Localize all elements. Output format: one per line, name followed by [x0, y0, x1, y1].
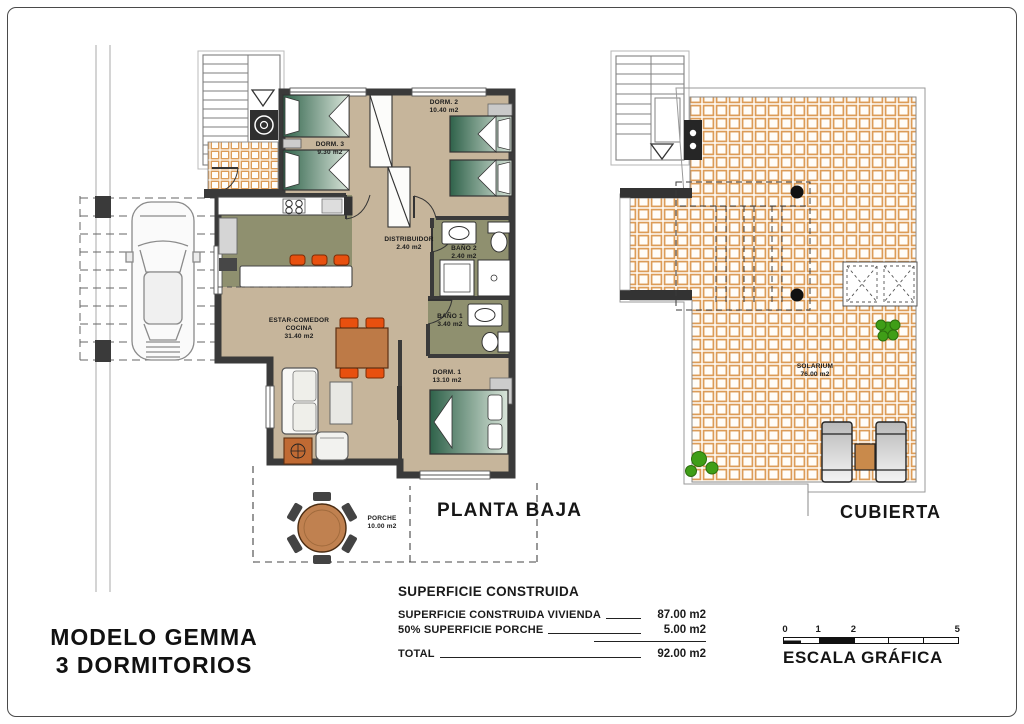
roof-drain-dot: [791, 186, 804, 199]
room-label-estar2: COCINA: [286, 325, 313, 332]
room-label-porche: PORCHE: [367, 515, 396, 522]
subtotal-rule: [594, 641, 706, 642]
surface-row-label: 50% SUPERFICIE PORCHE: [398, 624, 543, 636]
room-area-dorm2: 10.40 m2: [429, 107, 458, 114]
scale-tick: 2: [851, 624, 856, 635]
scale-ticks: 0 1 2 5: [783, 624, 959, 637]
scale-tick: 0: [782, 624, 787, 635]
total-label: TOTAL: [398, 648, 435, 660]
room-area-bano2: 2.40 m2: [451, 253, 476, 260]
room-label-dorm1: DORM. 1: [433, 369, 462, 376]
porch-table-set: [286, 492, 357, 564]
room-label-estar: ESTAR-COMEDOR: [269, 317, 329, 324]
boundary-lines: [96, 45, 110, 592]
leader-line: [548, 632, 641, 634]
skylight-grilles: [843, 262, 917, 306]
room-label-distribuidor: DISTRIBUIDOR: [384, 236, 433, 243]
side-table-lamp: [284, 438, 312, 464]
dorm1-door-leaf: [397, 386, 402, 420]
roof-room-labels: SOLARIUM 76.00 m2: [797, 363, 833, 378]
roof-drain-dot: [791, 289, 804, 302]
scale-bar: 0 1 2 5 ESCALA GRÁFICA: [783, 624, 959, 668]
surface-row-value: 87.00 m2: [646, 609, 706, 621]
carport-wall-stubs: [95, 196, 111, 362]
scale-tick: 5: [955, 624, 960, 635]
surface-row-value: 5.00 m2: [646, 624, 706, 636]
leader-line: [606, 617, 641, 619]
room-label-dorm2: DORM. 2: [430, 99, 459, 106]
model-title: MODELO GEMMA 3 DORMITORIOS: [44, 624, 264, 679]
washing-machine-icon: [250, 110, 278, 140]
sofa: [282, 368, 318, 434]
room-area-dorm1: 13.10 m2: [432, 377, 461, 384]
model-title-line2: 3 DORMITORIOS: [44, 652, 264, 680]
entry-tiles: [208, 142, 278, 196]
scale-segment: [801, 638, 818, 643]
surface-row-vivienda: SUPERFICIE CONSTRUIDA VIVIENDA 87.00 m2: [398, 609, 706, 621]
room-area-porche: 10.00 m2: [367, 523, 396, 530]
room-area-solarium: 76.00 m2: [800, 371, 829, 378]
leader-line: [440, 656, 641, 658]
room-area-estar: 31.40 m2: [284, 333, 313, 340]
roof-side-table: [855, 444, 875, 470]
room-label-bano1: BAÑO 1: [437, 311, 463, 320]
room-label-solarium: SOLARIUM: [797, 363, 833, 370]
room-label-bano2: BAÑO 2: [451, 243, 477, 252]
scale-tick: 1: [816, 624, 821, 635]
model-title-line1: MODELO GEMMA: [44, 624, 264, 652]
scale-title: ESCALA GRÁFICA: [783, 648, 959, 668]
scale-segment: [784, 638, 801, 643]
room-area-distribuidor: 2.40 m2: [396, 244, 421, 251]
roof-access-door: [684, 120, 702, 160]
total-value: 92.00 m2: [646, 648, 706, 660]
room-label-dorm3: DORM. 3: [316, 141, 345, 148]
floorplan-sheet: DORM. 3 9.30 m2 DORM. 2 10.40 m2 DISTRIB…: [0, 0, 1024, 724]
surface-table-title: SUPERFICIE CONSTRUIDA: [398, 584, 706, 599]
room-area-bano1: 3.40 m2: [437, 321, 462, 328]
surface-row-label: SUPERFICIE CONSTRUIDA VIVIENDA: [398, 609, 601, 621]
roof-stair-void: [620, 198, 630, 290]
coffee-table: [330, 382, 352, 424]
scale-segment: [854, 638, 889, 643]
armchair: [316, 432, 348, 460]
surface-total-row: TOTAL 92.00 m2: [398, 648, 706, 660]
scale-bar-graphic: [783, 637, 959, 644]
scale-segment: [923, 638, 958, 643]
bar-stools: [290, 255, 349, 265]
surface-table: SUPERFICIE CONSTRUIDA SUPERFICIE CONSTRU…: [398, 584, 706, 660]
room-area-dorm3: 9.30 m2: [317, 149, 342, 156]
dorm2-beds: [450, 104, 512, 196]
dorm1-bed: [430, 378, 512, 454]
car: [126, 202, 200, 360]
scale-segment: [888, 638, 923, 643]
surface-row-porche: 50% SUPERFICIE PORCHE 5.00 m2: [398, 624, 706, 636]
scale-segment: [819, 638, 854, 643]
roof-plan-title: CUBIERTA: [840, 502, 941, 523]
ground-plan-title: PLANTA BAJA: [437, 500, 582, 522]
